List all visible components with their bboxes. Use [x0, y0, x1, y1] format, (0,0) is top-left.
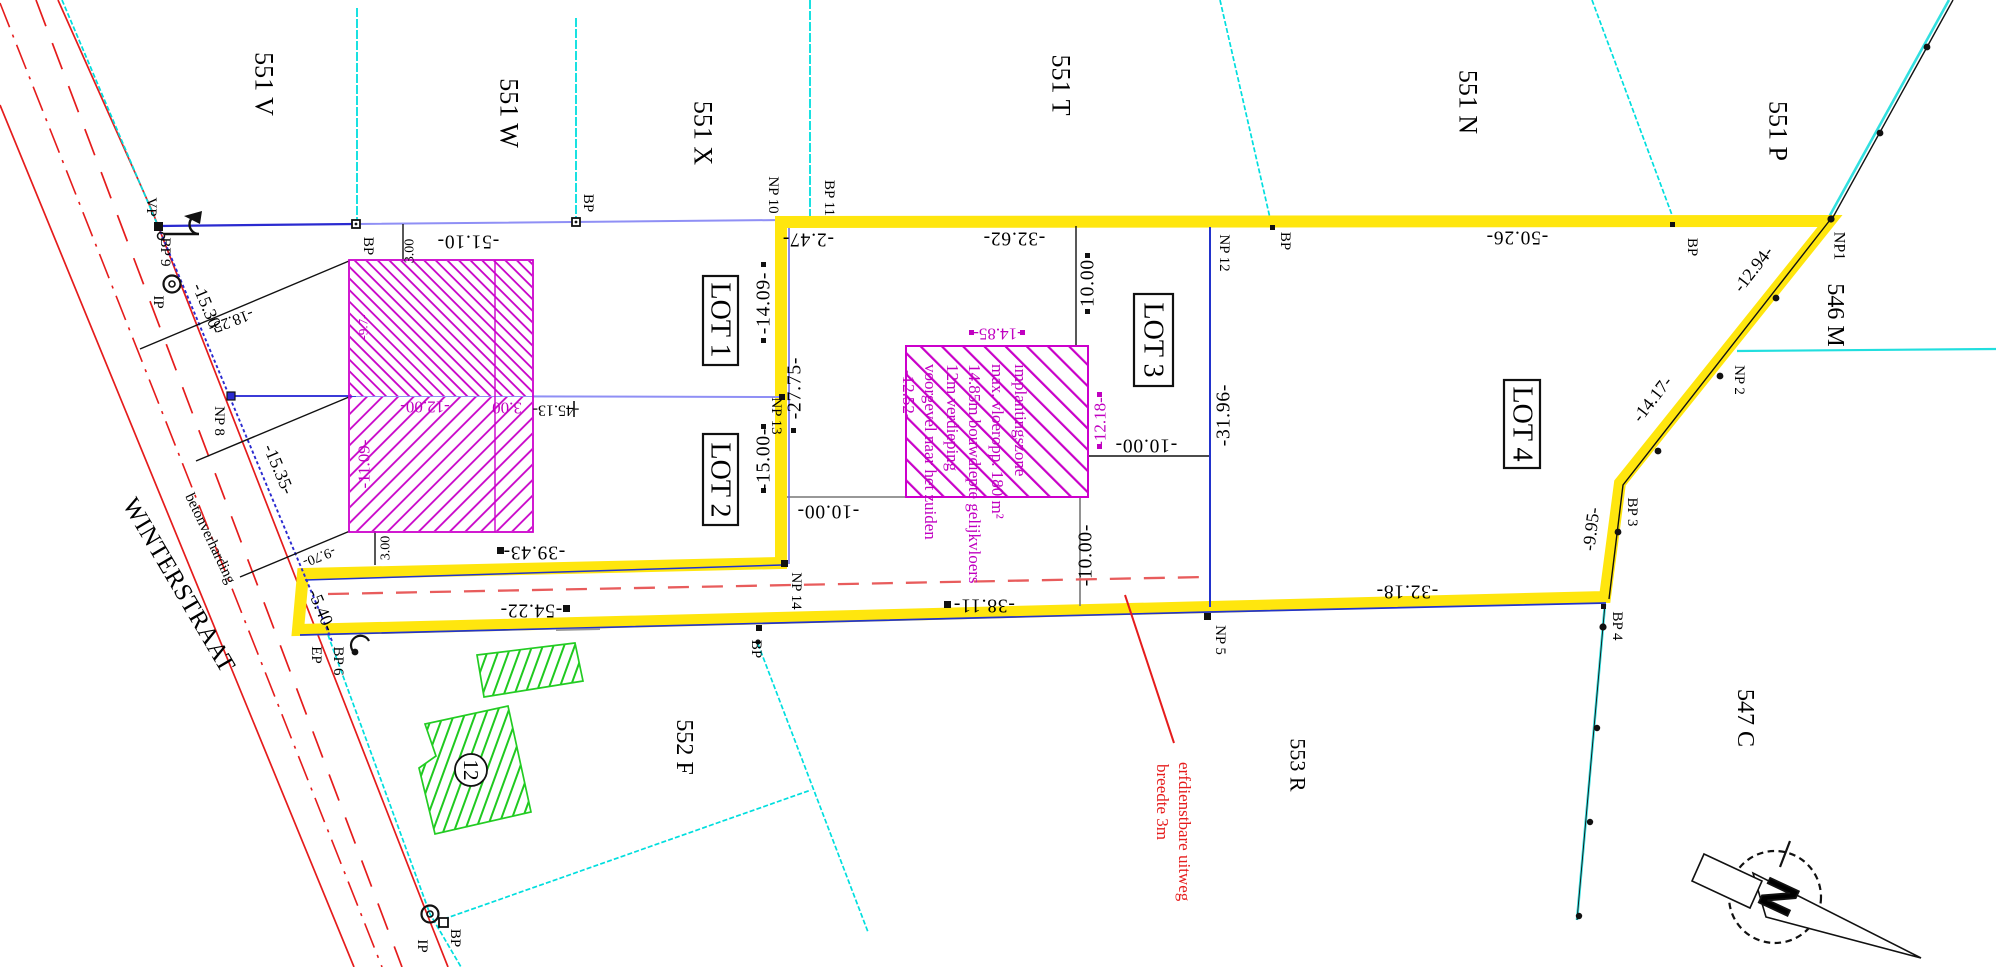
svg-text:-27.75-: -27.75- — [785, 357, 806, 419]
svg-text:551 N: 551 N — [1454, 70, 1483, 135]
svg-text:14.85m bouwdiepte gelijkvloers: 14.85m bouwdiepte gelijkvloers — [965, 364, 984, 584]
svg-text:-12.00-: -12.00- — [400, 398, 450, 417]
svg-text:-9.95-: -9.95- — [1578, 506, 1603, 552]
svg-text:-12.18-: -12.18- — [1091, 397, 1110, 447]
svg-text:IP: IP — [150, 295, 166, 308]
svg-text:NP 12: NP 12 — [1216, 234, 1232, 271]
svg-text:IP: IP — [414, 939, 430, 952]
svg-text:NP 8: NP 8 — [211, 406, 227, 436]
svg-text:NP 10: NP 10 — [765, 176, 781, 213]
svg-text:implantingszone: implantingszone — [1011, 364, 1030, 476]
svg-text:547 C: 547 C — [1732, 689, 1758, 747]
svg-text:-15.00-: -15.00- — [754, 428, 775, 490]
svg-text:NP 2: NP 2 — [1731, 365, 1747, 395]
svg-text:EP: EP — [308, 646, 324, 664]
svg-text:-12.52-: -12.52- — [899, 370, 918, 420]
svg-text:erfdienstbare uitweg: erfdienstbare uitweg — [1175, 762, 1194, 902]
svg-text:-38.11-: -38.11- — [953, 595, 1015, 616]
svg-text:551 T: 551 T — [1047, 55, 1076, 116]
svg-text:BP 4: BP 4 — [1609, 611, 1625, 641]
svg-text:max. vloeropp. 180 m²: max. vloeropp. 180 m² — [988, 364, 1007, 519]
svg-text:-31.96-: -31.96- — [1214, 384, 1235, 446]
svg-text:LOT 4: LOT 4 — [1507, 387, 1538, 462]
svg-text:voorgevel naar het zuiden: voorgevel naar het zuiden — [921, 364, 940, 540]
svg-text:NP 5: NP 5 — [1212, 625, 1228, 655]
svg-text:551 V: 551 V — [250, 52, 279, 116]
svg-text:VP: VP — [143, 197, 159, 216]
svg-text:-39.43-: -39.43- — [503, 542, 565, 563]
svg-text:BP 3: BP 3 — [1624, 497, 1640, 526]
svg-text:betonverharding: betonverharding — [181, 491, 238, 587]
svg-text:-10.00-: -10.00- — [797, 501, 859, 522]
svg-text:BP 9: BP 9 — [157, 237, 173, 266]
svg-text:-10.00-: -10.00- — [1115, 435, 1177, 456]
svg-text:3.00: 3.00 — [379, 536, 394, 561]
svg-text:551 X: 551 X — [689, 101, 718, 166]
svg-text:551 W: 551 W — [495, 78, 524, 148]
svg-text:-50.26-: -50.26- — [1486, 227, 1548, 248]
svg-text:-14.85-: -14.85- — [973, 325, 1023, 344]
svg-text:-11.09-: -11.09- — [355, 439, 374, 488]
svg-text:-32.18-: -32.18- — [1376, 581, 1438, 602]
svg-text:12m verdieping: 12m verdieping — [943, 364, 962, 472]
svg-text:-45.13-: -45.13- — [533, 402, 580, 419]
svg-text:10.00: 10.00 — [1078, 259, 1099, 307]
svg-text:-9.7-: -9.7- — [356, 315, 371, 340]
svg-text:552 F: 552 F — [671, 719, 697, 774]
svg-text:LOT 3: LOT 3 — [1138, 303, 1169, 378]
svg-text:-2.47-: -2.47- — [782, 229, 834, 250]
svg-text:553 R: 553 R — [1286, 738, 1311, 792]
svg-text:-51.10-: -51.10- — [437, 231, 499, 252]
svg-text:-54.22-: -54.22- — [500, 600, 562, 621]
svg-text:NP1: NP1 — [1831, 232, 1848, 260]
svg-text:546 M: 546 M — [1822, 283, 1848, 346]
svg-text:-15.35-: -15.35- — [260, 441, 299, 497]
svg-text:BP: BP — [447, 929, 463, 947]
svg-text:BP: BP — [360, 237, 376, 255]
svg-text:breedte 3m: breedte 3m — [1153, 764, 1172, 840]
svg-text:BP: BP — [1684, 238, 1700, 256]
svg-text:551 P: 551 P — [1764, 101, 1793, 161]
svg-text:BP 11: BP 11 — [821, 180, 837, 216]
svg-text:-32.62-: -32.62- — [983, 228, 1045, 249]
svg-text:3.00: 3.00 — [403, 239, 418, 264]
svg-text:3.00: 3.00 — [492, 399, 522, 418]
svg-text:NP 14: NP 14 — [788, 572, 804, 610]
svg-text:BP: BP — [580, 194, 596, 212]
svg-text:WINTERSTRAAT: WINTERSTRAAT — [117, 493, 241, 677]
svg-text:-9.70-: -9.70- — [300, 543, 337, 569]
svg-text:BP: BP — [748, 640, 764, 658]
svg-text:-10.00-: -10.00- — [1076, 524, 1097, 586]
svg-text:-14.09-: -14.09- — [754, 272, 775, 334]
svg-text:12: 12 — [459, 760, 483, 781]
svg-text:BP 6: BP 6 — [330, 646, 346, 676]
svg-text:BP: BP — [1277, 232, 1293, 250]
svg-text:LOT 1: LOT 1 — [705, 283, 736, 358]
svg-text:LOT 2: LOT 2 — [705, 443, 736, 518]
